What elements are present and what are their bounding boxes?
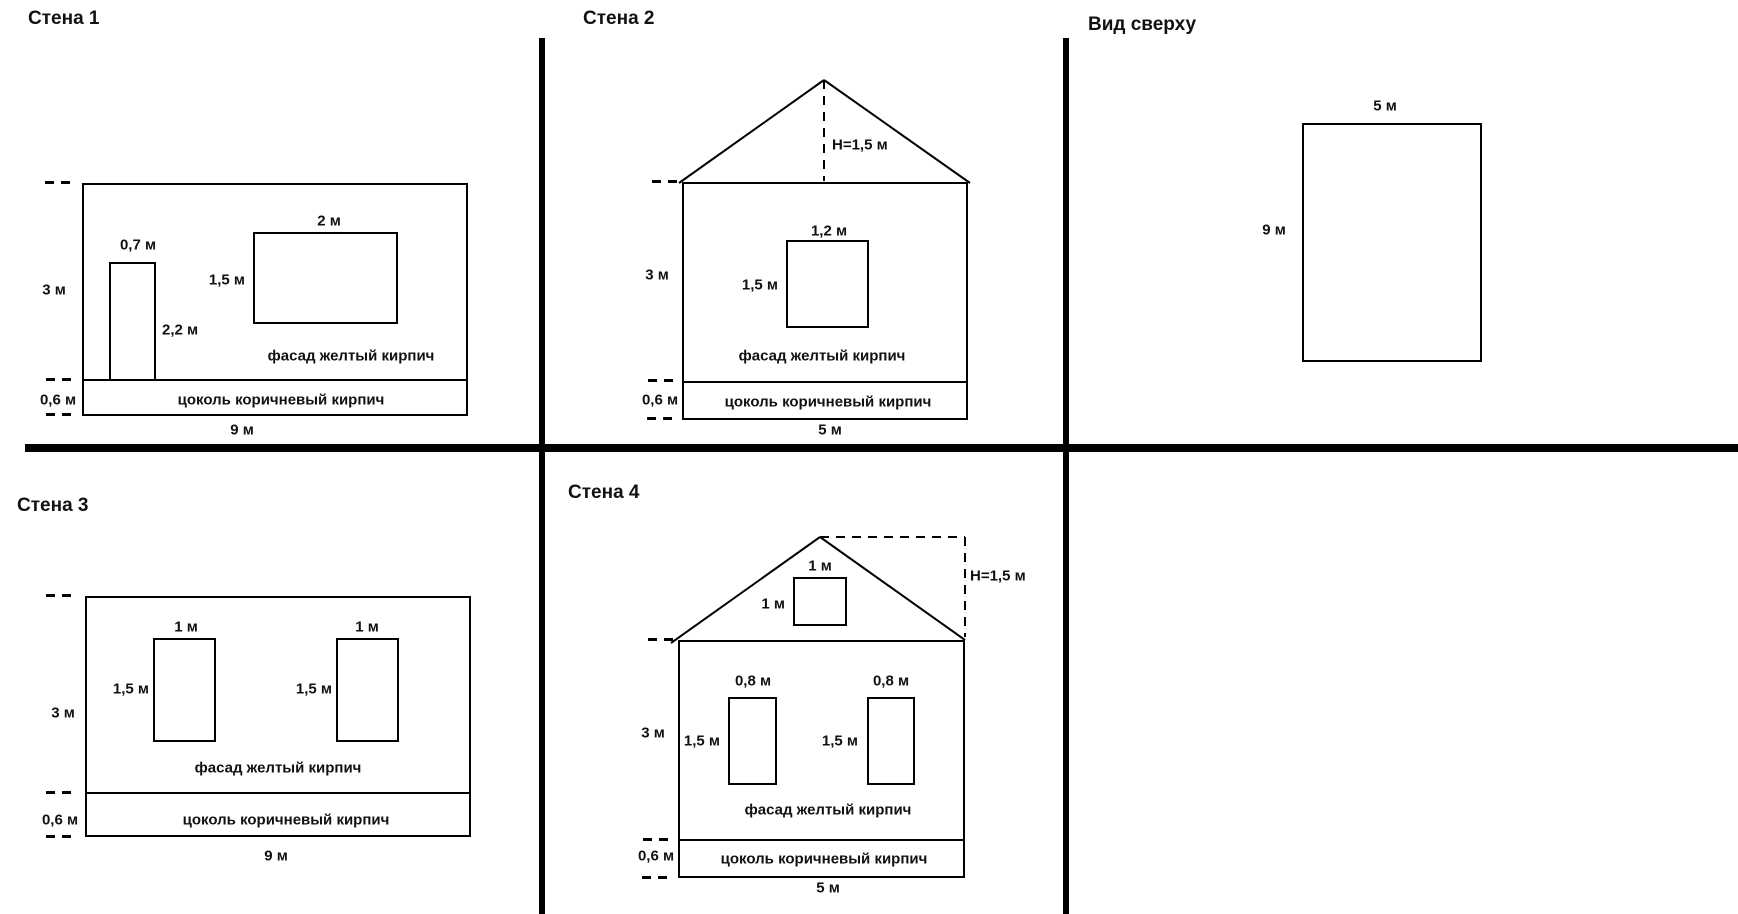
panel-title: Стена 1	[28, 8, 99, 30]
dash-tick-plinth-top	[648, 379, 675, 382]
plinth-height-label: 0,6 м	[638, 848, 674, 865]
door	[109, 262, 156, 380]
window-2-height-label: 1,5 м	[296, 681, 332, 698]
plinth-height-label: 0,6 м	[40, 392, 76, 409]
window-1-width-label: 1 м	[174, 619, 198, 636]
wall-width-label: 9 м	[230, 422, 254, 439]
window-2-width-label: 0,8 м	[873, 673, 909, 690]
window-1	[153, 638, 216, 742]
plan-outline	[1302, 123, 1482, 362]
window-1-height-label: 1,5 м	[684, 733, 720, 750]
dash-tick-plinth-bottom	[46, 835, 73, 838]
window	[253, 232, 398, 324]
plan-depth-label: 9 м	[1262, 222, 1286, 239]
window-2	[336, 638, 399, 742]
gable-window-width-label: 1 м	[808, 558, 832, 575]
plinth-height-label: 0,6 м	[642, 392, 678, 409]
panel-title: Стена 3	[17, 495, 88, 517]
door-width-label: 0,7 м	[120, 237, 156, 254]
wall-width-label: 5 м	[816, 880, 840, 897]
plinth-height-label: 0,6 м	[42, 812, 78, 829]
dash-tick-wall-top	[46, 594, 73, 597]
wall-outline	[85, 596, 471, 837]
gable-window	[793, 577, 847, 626]
dash-tick-wall-top	[652, 180, 679, 183]
roof-height-label: Н=1,5 м	[832, 137, 888, 154]
wall-height-label: 3 м	[51, 705, 75, 722]
facade-material-label: фасад желтый кирпич	[739, 348, 906, 365]
gable-window-height-label: 1 м	[761, 596, 785, 613]
dash-tick-plinth-top	[643, 838, 670, 841]
window-2-width-label: 1 м	[355, 619, 379, 636]
facade-material-label: фасад желтый кирпич	[745, 802, 912, 819]
plinth-material-label: цоколь коричневый кирпич	[721, 851, 928, 868]
panel-wall-1: Стена 1 0,7 м 2 м 1,5 м 2,2 м 3 м фасад …	[0, 0, 540, 452]
dash-tick-plinth-top	[46, 791, 73, 794]
dash-tick-plinth-bottom	[46, 413, 73, 416]
wall-width-label: 5 м	[818, 422, 842, 439]
facade-plinth-separator	[85, 792, 471, 794]
elevation-drawing-sheet: Стена 1 0,7 м 2 м 1,5 м 2,2 м 3 м фасад …	[0, 0, 1738, 914]
panel-top-view: Вид сверху 5 м 9 м	[1065, 0, 1738, 452]
roof-right-slope	[824, 80, 970, 183]
facade-plinth-separator	[682, 381, 968, 383]
wall-width-label: 9 м	[264, 848, 288, 865]
wall-height-label: 3 м	[641, 725, 665, 742]
dash-tick-plinth-bottom	[647, 417, 674, 420]
dash-tick-wall-top	[45, 181, 72, 184]
panel-wall-2: Стена 2 Н=1,5 м 1,2 м 1,5 м 3 м фасад же…	[540, 0, 1065, 452]
facade-material-label: фасад желтый кирпич	[268, 348, 435, 365]
dash-tick-plinth-top	[46, 378, 73, 381]
window-1-width-label: 0,8 м	[735, 673, 771, 690]
door-height-label: 2,2 м	[162, 322, 198, 339]
panel-title: Вид сверху	[1088, 14, 1196, 36]
window-1	[728, 697, 777, 785]
window-2	[867, 697, 915, 785]
window-1-height-label: 1,5 м	[113, 681, 149, 698]
panel-wall-4: Стена 4 Н=1,5 м 1 м 1 м 0,8 м 0,8 м 1,5 …	[540, 452, 1065, 914]
window-2-height-label: 1,5 м	[822, 733, 858, 750]
window-height-label: 1,5 м	[209, 272, 245, 289]
plinth-material-label: цоколь коричневый кирпич	[183, 812, 390, 829]
roof-left-slope	[679, 80, 824, 183]
wall-height-label: 3 м	[645, 267, 669, 284]
facade-plinth-separator	[678, 839, 965, 841]
panel-wall-3: Стена 3 1 м 1 м 1,5 м 1,5 м 3 м фасад же…	[0, 452, 540, 914]
dash-tick-wall-top	[648, 638, 675, 641]
window	[786, 240, 869, 328]
plinth-material-label: цоколь коричневый кирпич	[725, 394, 932, 411]
plan-width-label: 5 м	[1373, 98, 1397, 115]
roof-height-label: Н=1,5 м	[970, 568, 1026, 585]
dash-tick-plinth-bottom	[642, 876, 669, 879]
plinth-material-label: цоколь коричневый кирпич	[178, 392, 385, 409]
wall-height-label: 3 м	[42, 282, 66, 299]
wall-outline	[678, 640, 965, 878]
facade-material-label: фасад желтый кирпич	[195, 760, 362, 777]
window-height-label: 1,5 м	[742, 277, 778, 294]
window-width-label: 1,2 м	[811, 223, 847, 240]
window-width-label: 2 м	[317, 213, 341, 230]
